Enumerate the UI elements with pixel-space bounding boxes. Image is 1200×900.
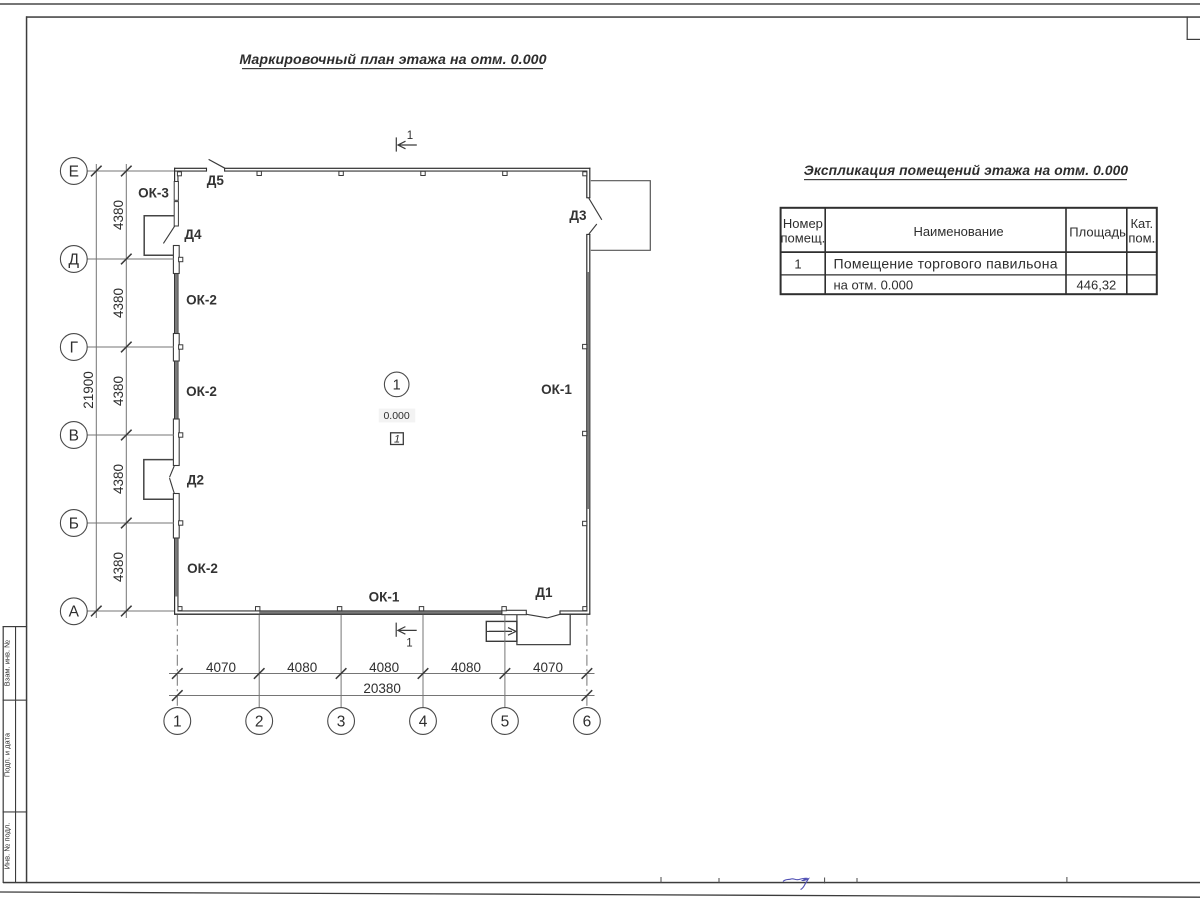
svg-text:4380: 4380 bbox=[111, 200, 126, 230]
svg-text:4080: 4080 bbox=[369, 660, 399, 675]
svg-text:ОК-1: ОК-1 bbox=[541, 382, 572, 397]
svg-text:5: 5 bbox=[501, 713, 510, 730]
svg-text:Д5: Д5 bbox=[207, 173, 225, 188]
svg-text:0.000: 0.000 bbox=[383, 410, 409, 422]
svg-text:1: 1 bbox=[794, 257, 801, 272]
svg-text:20380: 20380 bbox=[363, 681, 401, 696]
svg-text:на отм. 0.000: на отм. 0.000 bbox=[834, 278, 914, 293]
svg-text:Д1: Д1 bbox=[535, 585, 553, 600]
svg-text:Экспликация помещений этажа на: Экспликация помещений этажа на отм. 0.00… bbox=[804, 163, 1129, 178]
svg-text:4070: 4070 bbox=[533, 660, 563, 675]
svg-text:Д4: Д4 bbox=[184, 227, 202, 242]
svg-text:ОК-2: ОК-2 bbox=[186, 384, 217, 399]
svg-text:ОК-2: ОК-2 bbox=[186, 292, 217, 307]
svg-text:4: 4 bbox=[419, 713, 428, 730]
svg-text:446,32: 446,32 bbox=[1077, 278, 1117, 293]
svg-text:2: 2 bbox=[255, 713, 264, 730]
svg-text:Д: Д bbox=[69, 251, 80, 268]
svg-text:21900: 21900 bbox=[81, 371, 96, 409]
svg-text:1: 1 bbox=[406, 638, 412, 650]
svg-text:4380: 4380 bbox=[111, 288, 126, 318]
svg-text:Б: Б bbox=[69, 515, 79, 532]
svg-text:4380: 4380 bbox=[111, 552, 126, 582]
svg-text:Г: Г bbox=[70, 339, 79, 356]
svg-text:Помещение торгового павильона: Помещение торгового павильона bbox=[834, 256, 1058, 272]
svg-text:4080: 4080 bbox=[451, 660, 481, 675]
svg-text:1: 1 bbox=[173, 713, 182, 730]
svg-text:Взам. инв. №: Взам. инв. № bbox=[3, 640, 12, 686]
svg-text:4380: 4380 bbox=[111, 464, 126, 494]
svg-text:ОК-3: ОК-3 bbox=[138, 185, 169, 200]
svg-text:Подп. и дата: Подп. и дата bbox=[3, 732, 12, 777]
svg-text:4380: 4380 bbox=[111, 376, 126, 406]
svg-text:Номер: Номер bbox=[783, 216, 823, 231]
svg-text:Д2: Д2 bbox=[187, 473, 204, 488]
svg-text:Маркировочный план этажа на от: Маркировочный план этажа на отм. 0.000 bbox=[239, 52, 546, 68]
svg-text:1: 1 bbox=[394, 433, 400, 445]
svg-text:Площадь: Площадь bbox=[1069, 225, 1126, 240]
svg-text:ОК-1: ОК-1 bbox=[369, 590, 400, 605]
svg-text:4070: 4070 bbox=[206, 660, 236, 675]
svg-text:помещ.: помещ. bbox=[781, 231, 826, 246]
svg-text:Инв. № подл.: Инв. № подл. bbox=[3, 823, 12, 870]
svg-text:Е: Е bbox=[69, 163, 79, 180]
svg-text:4080: 4080 bbox=[287, 660, 317, 675]
svg-text:В: В bbox=[69, 427, 79, 444]
svg-text:пом.: пом. bbox=[1128, 231, 1155, 246]
svg-text:1: 1 bbox=[407, 130, 413, 142]
svg-text:А: А bbox=[69, 604, 80, 621]
svg-text:ОК-2: ОК-2 bbox=[187, 561, 218, 576]
svg-text:Кат.: Кат. bbox=[1130, 216, 1153, 231]
svg-text:6: 6 bbox=[583, 713, 592, 730]
svg-text:1: 1 bbox=[393, 378, 401, 394]
svg-text:Наименование: Наименование bbox=[913, 224, 1003, 239]
svg-text:3: 3 bbox=[337, 713, 346, 730]
svg-text:Д3: Д3 bbox=[569, 208, 587, 223]
